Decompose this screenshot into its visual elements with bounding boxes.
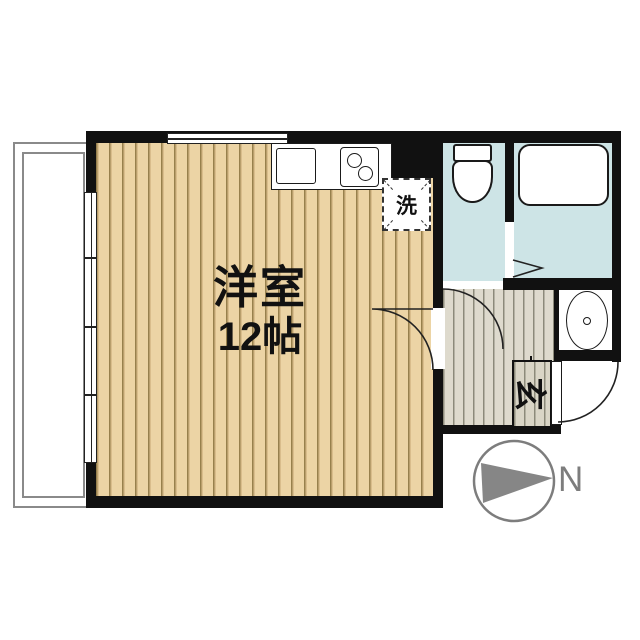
entrance-area: 玄 <box>512 360 552 428</box>
left-window-sash-line <box>91 193 93 462</box>
kitchen-counter <box>271 143 392 190</box>
left-window <box>84 192 97 463</box>
washbasin-drain-icon <box>583 317 591 325</box>
stove-burner-icon <box>358 166 373 181</box>
laundry-label-box: 洗 <box>392 190 422 220</box>
wall-under-vanity <box>554 350 621 361</box>
compass-icon <box>474 441 554 521</box>
western-room-size: 12帖 <box>150 314 370 360</box>
top-window-sash-line <box>168 138 287 140</box>
kitchen-sink-icon <box>276 148 316 184</box>
left-window-sep-1 <box>85 257 96 259</box>
balcony-inner-rail <box>22 152 85 498</box>
compass-circle <box>474 441 554 521</box>
washing-machine-icon: 洗 <box>382 178 431 231</box>
bathtub-icon <box>518 144 609 206</box>
top-window <box>167 133 288 144</box>
stove-icon <box>340 147 379 187</box>
compass-north-label: N <box>558 460 583 500</box>
wall-bottom-main <box>86 496 443 508</box>
wall-under-wet-rooms <box>503 278 621 290</box>
entrance-door-leaf <box>551 361 562 425</box>
laundry-label: 洗 <box>396 190 417 220</box>
left-window-sep-3 <box>85 394 96 396</box>
entrance-tick-bottom <box>530 426 532 432</box>
stove-burner-icon <box>347 153 362 168</box>
compass-north-arrow-icon <box>481 463 553 503</box>
western-room-name: 洋室 <box>150 262 370 314</box>
wall-kitchen-corner <box>392 143 433 178</box>
left-window-sep-2 <box>85 326 96 328</box>
entrance-door-swing-arc <box>558 362 618 422</box>
wall-toilet-bath-divider <box>505 131 514 222</box>
western-room-label: 洋室 12帖 <box>150 262 370 361</box>
floor-plan: 洗 玄 洋室 12帖 N <box>0 0 640 640</box>
main-room-door-opening <box>431 308 445 369</box>
entrance-label: 玄 <box>508 378 556 411</box>
entrance-tick-top <box>530 356 532 362</box>
wall-right <box>612 131 621 362</box>
